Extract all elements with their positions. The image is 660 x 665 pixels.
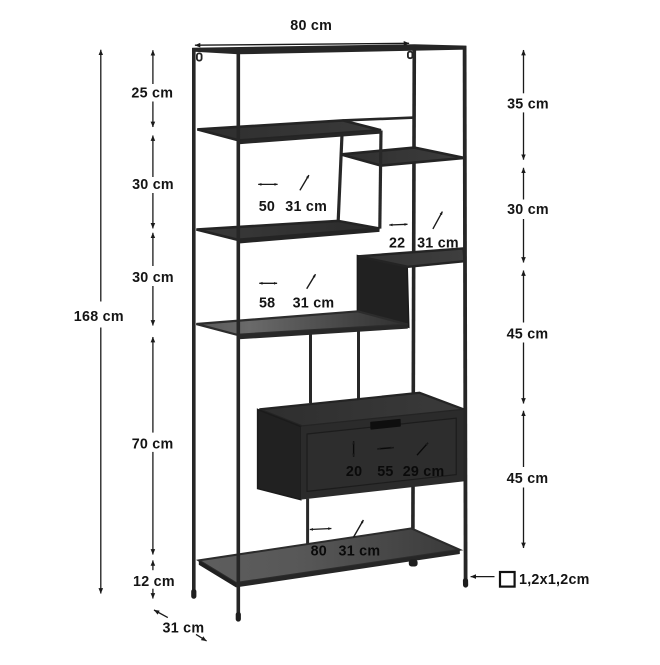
svg-text:31 cm: 31 cm [417, 235, 459, 251]
svg-text:1,2x1,2cm: 1,2x1,2cm [519, 572, 590, 588]
svg-text:31 cm: 31 cm [285, 199, 327, 215]
svg-text:20: 20 [346, 464, 362, 480]
svg-text:80 cm: 80 cm [290, 18, 332, 34]
svg-text:70 cm: 70 cm [132, 436, 174, 452]
svg-text:30 cm: 30 cm [132, 270, 174, 286]
svg-text:58: 58 [259, 296, 275, 312]
svg-text:168 cm: 168 cm [74, 309, 124, 325]
svg-text:12 cm: 12 cm [133, 574, 175, 590]
svg-text:29 cm: 29 cm [403, 464, 445, 480]
svg-text:45 cm: 45 cm [507, 471, 549, 487]
svg-text:45 cm: 45 cm [507, 326, 549, 342]
svg-text:30 cm: 30 cm [507, 202, 549, 218]
svg-text:55: 55 [377, 464, 393, 480]
svg-text:31 cm: 31 cm [293, 296, 335, 312]
svg-text:35 cm: 35 cm [507, 96, 549, 112]
svg-text:25 cm: 25 cm [131, 86, 173, 102]
svg-text:30 cm: 30 cm [132, 177, 174, 193]
svg-text:31 cm: 31 cm [339, 544, 381, 560]
svg-text:31 cm: 31 cm [163, 620, 205, 636]
svg-text:50: 50 [259, 199, 275, 215]
svg-text:80: 80 [311, 544, 327, 560]
svg-text:22: 22 [389, 235, 405, 251]
